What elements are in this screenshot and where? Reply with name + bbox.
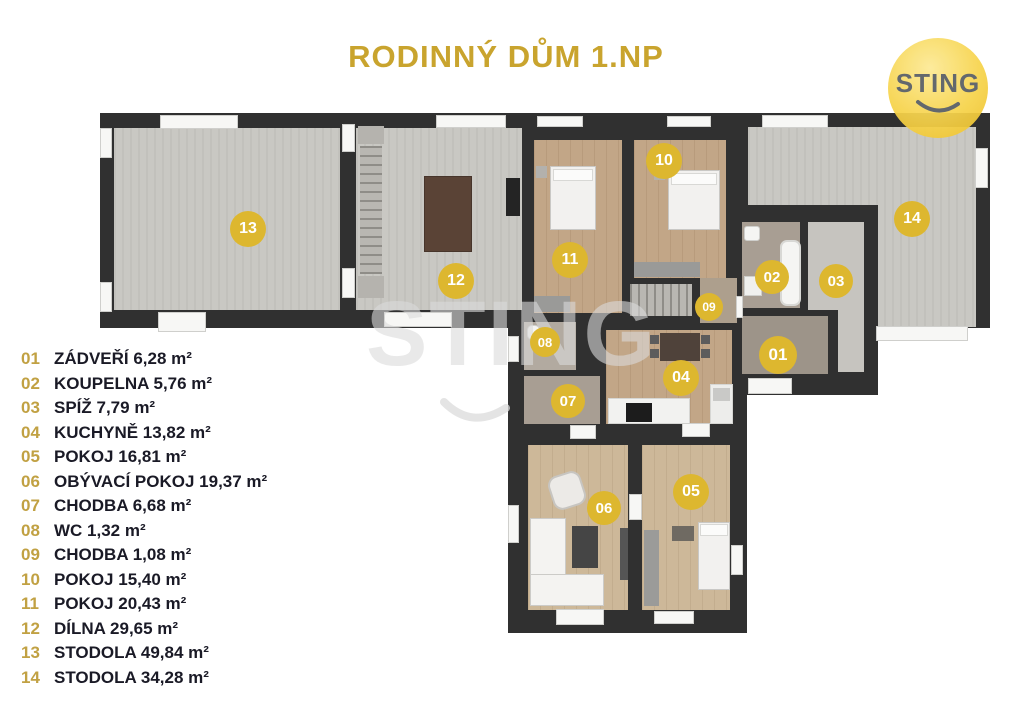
room-number-badge: 10	[646, 143, 682, 179]
room-number-badge: 08	[530, 327, 560, 357]
sting-logo: STING	[888, 38, 988, 138]
room-number-badge: 03	[819, 264, 853, 298]
room-number-badge: 02	[755, 260, 789, 294]
room-number-badge: 01	[759, 336, 797, 374]
floor-plan: STING 1312111014020301090807040605	[0, 0, 1024, 724]
room-number-badge: 11	[552, 242, 588, 278]
room-number-badge: 05	[673, 474, 709, 510]
room-badges: 1312111014020301090807040605	[0, 0, 1024, 724]
room-number-badge: 07	[551, 384, 585, 418]
room-number-badge: 09	[695, 293, 723, 321]
room-number-badge: 14	[894, 201, 930, 237]
room-number-badge: 04	[663, 360, 699, 396]
sting-logo-text: STING	[896, 68, 980, 99]
room-number-badge: 13	[230, 211, 266, 247]
room-number-badge: 12	[438, 263, 474, 299]
room-number-badge: 06	[587, 491, 621, 525]
smile-icon	[914, 99, 962, 117]
